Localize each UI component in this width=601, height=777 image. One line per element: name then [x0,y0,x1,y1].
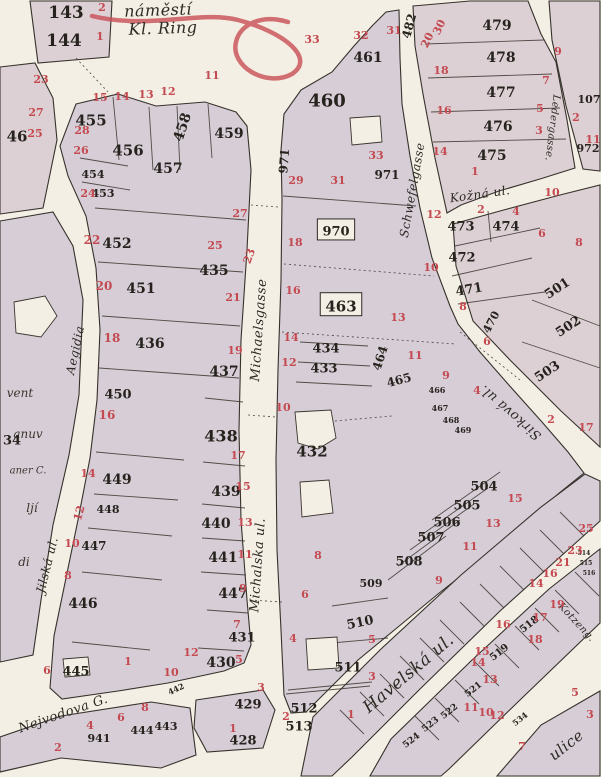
house-number-label: 26 [73,144,89,157]
house-number-label: 4 [512,205,520,218]
corner-hatch-3 [330,751,368,774]
parcel-431: 431 [228,631,255,646]
house-number-15: 15 [507,492,522,505]
house-number-10: 10 [423,261,439,274]
parcel-label: 472 [448,251,475,266]
house-number-3: 3 [586,708,594,721]
house-number-label: 16 [285,284,301,297]
house-number-label: 8 [575,236,583,249]
house-number-14: 14 [432,145,448,158]
house-number-label: 12 [426,208,441,221]
house-number-label: 18 [104,331,121,345]
parcel-436: 436 [135,336,164,352]
parcel-label: 443 [155,720,178,733]
house-number-label: 3 [368,670,376,683]
house-number-label: 13 [390,311,405,324]
house-number-18: 18 [527,633,543,646]
house-number-label: 13 [138,88,153,101]
parcel-label: 467 [432,403,449,413]
parcel-label: 437 [209,364,238,380]
house-number-label: 9 [435,574,443,587]
parcel-46: 46 [7,127,28,145]
parcel-label: 444 [131,724,154,737]
parcel-506: 506 [433,516,460,531]
parcel-463: 463 [320,293,362,316]
house-number-17: 17 [532,611,547,624]
house-number-21: 21 [225,291,240,304]
house-number-8: 8 [314,549,322,562]
corner-hatch-1 [70,745,141,776]
parcel-label: 445 [62,665,89,680]
house-number-3: 3 [257,681,265,694]
parcel-label: 516 [583,570,596,577]
parcel-445: 445 [62,665,89,680]
house-number-1: 1 [96,30,104,43]
house-number-label: 6 [117,711,125,724]
house-number-label: 16 [436,104,452,117]
house-number-10: 10 [163,666,179,679]
house-number-14: 14 [283,331,299,344]
parcel-label: 107 [578,93,601,106]
house-number-label: 17 [578,421,593,434]
parcel-504: 504 [470,480,497,495]
parcel-941: 941 [88,732,111,745]
house-number-10: 10 [275,401,291,414]
parcel-label: 46 [7,127,28,145]
parcel-459: 459 [214,126,243,142]
house-number-label: 11 [237,548,252,561]
house-number-label: 15 [92,91,107,104]
parcel-460: 460 [308,90,346,111]
house-number-label: 9 [239,582,247,595]
house-number-18: 18 [433,64,449,77]
house-number-label: 18 [527,633,543,646]
house-number-label: 13 [485,517,500,530]
house-number-27: 27 [28,106,43,119]
house-number-label: 2 [547,413,555,426]
house-number-label: 6 [301,588,309,601]
parcel-444: 444 [131,724,154,737]
house-number-label: 6 [483,335,491,348]
house-number-22: 22 [84,233,101,247]
parcel-457: 457 [153,161,182,177]
house-number-label: 17 [532,611,547,624]
house-number-1: 1 [124,655,132,668]
parcel-435: 435 [199,263,228,279]
house-number-label: 25 [27,127,42,140]
parcel-434: 434 [312,342,339,357]
house-number-label: 16 [542,567,558,580]
house-number-25: 25 [27,127,42,140]
house-number-14: 14 [470,656,486,669]
parcel-478: 478 [486,50,515,66]
house-number-label: 14 [283,331,299,344]
house-number-label: 4 [473,384,481,397]
house-number-label: 9 [554,45,562,58]
parcel-475: 475 [477,148,506,164]
house-number-19: 19 [227,344,242,357]
house-number-label: 9 [442,369,450,382]
house-number-11: 11 [462,540,477,553]
house-number-4: 4 [473,384,481,397]
parcel-433: 433 [310,362,337,377]
house-number-label: 25 [578,522,593,535]
parcel-label: 460 [308,90,346,111]
parcel-label: 428 [229,734,256,749]
parcel-429: 429 [234,698,261,713]
house-number-18: 18 [104,331,121,345]
house-number-5: 5 [536,102,544,115]
house-number-label: 21 [225,291,240,304]
parcel-label: 432 [296,442,327,460]
house-number-label: 1 [471,165,479,178]
map-canvas: náměstíKl. RingMichaelsgasseMichalska ul… [0,0,601,777]
house-number-label: 18 [287,236,303,249]
house-number-13: 13 [482,673,497,686]
house-number-10: 10 [478,706,494,719]
parcel-label: 457 [153,161,182,177]
parcel-label: 438 [204,427,237,446]
house-number-label: 13 [237,516,252,529]
parcel-label: 461 [353,50,382,66]
house-number-18: 18 [287,236,303,249]
house-number-31: 31 [386,24,401,37]
house-number-16: 16 [285,284,301,297]
house-number-label: 7 [518,740,526,753]
house-number-14: 14 [114,90,130,103]
house-number-label: 23 [33,73,48,86]
house-number-label: 17 [230,449,245,462]
parcel-label: 971 [374,168,399,182]
parcel-label: 434 [312,342,339,357]
parcel-515: 515 [580,560,593,567]
house-number-label: 1 [229,722,237,735]
fragment-di: di [18,555,30,569]
house-number-label: 29 [288,174,303,187]
house-number-12: 12 [160,85,175,98]
house-number-28: 28 [74,124,90,137]
house-number-label: 14 [432,145,448,158]
house-number-16: 16 [542,567,558,580]
parcel-441: 441 [208,550,237,566]
house-number-label: 13 [482,673,497,686]
house-number-6: 6 [483,335,491,348]
street-kl-ring: Kl. Ring [127,17,198,38]
parcel-516: 516 [583,570,596,577]
parcel-label: 508 [395,555,422,570]
parcel-label: 448 [97,503,120,516]
parcel-511: 511 [334,661,361,676]
house-number-32: 32 [353,29,368,42]
house-number-label: 10 [544,186,560,199]
parcel-label: 468 [443,415,460,425]
house-number-label: 14 [114,90,130,103]
house-number-label: 11 [585,133,600,146]
house-number-2: 2 [282,710,290,723]
house-number-label: 33 [304,33,319,46]
parcel-label: 466 [429,385,446,395]
parcel-label: 452 [102,236,131,252]
parcel-971: 971 [276,148,292,174]
parcel-label: 440 [201,516,230,532]
house-number-6: 6 [538,227,546,240]
house-number-10: 10 [544,186,560,199]
house-number-label: 8 [141,701,149,714]
parcel-469: 469 [455,425,472,435]
house-number-2: 2 [477,203,485,216]
parcel-428: 428 [229,734,256,749]
house-number-label: 25 [207,239,222,252]
parcel-label: 433 [310,362,337,377]
parcel-label: 463 [325,297,356,315]
parcel-447: 447 [81,539,106,553]
house-number-2: 2 [572,111,580,124]
parcel-label: 504 [470,480,497,495]
parcel-label: 475 [477,148,506,164]
house-number-5: 5 [368,633,376,646]
house-number-label: 28 [74,124,90,137]
house-number-13: 13 [237,516,252,529]
house-number-6: 6 [43,664,51,677]
parcel-508: 508 [395,555,422,570]
house-number-label: 19 [227,344,242,357]
street-label: Kl. Ring [127,17,198,38]
house-number-label: 31 [386,24,401,37]
parcel-label: 511 [334,661,361,676]
parcel-label: 454 [82,168,105,181]
historical-cadastral-map: náměstíKl. RingMichaelsgasseMichalska ul… [0,0,601,777]
house-number-20: 20 [96,279,113,293]
parcel-450: 450 [104,388,131,403]
house-number-label: 11 [463,701,478,714]
house-number-9: 9 [239,582,247,595]
house-number-label: 1 [124,655,132,668]
house-number-label: 22 [84,233,101,247]
house-number-3: 3 [368,670,376,683]
parcel-505: 505 [453,499,480,514]
house-number-1: 1 [471,165,479,178]
parcel-label: 515 [580,560,593,567]
house-number-5: 5 [235,653,243,666]
house-number-11: 11 [407,349,422,362]
house-number-label: 15 [235,480,250,493]
house-number-label: 3 [586,708,594,721]
parcel-label: 509 [360,577,383,590]
house-number-13: 13 [485,517,500,530]
fragment-label: di [18,555,30,569]
house-number-label: 5 [536,102,544,115]
house-number-8: 8 [64,569,72,582]
parcel-466: 466 [429,385,446,395]
house-number-label: 15 [507,492,522,505]
house-number-12: 12 [281,356,296,369]
house-number-11: 11 [585,133,600,146]
parcel-label: 476 [483,119,512,135]
house-number-11: 11 [204,69,219,82]
house-number-9: 9 [435,574,443,587]
house-number-label: 20 [96,279,113,293]
house-number-label: 12 [183,646,198,659]
parcel-label: 447 [81,539,106,553]
house-number-label: 11 [462,540,477,553]
parcel-label: 450 [104,388,131,403]
house-number-33: 33 [368,149,383,162]
parcel-971: 971 [374,168,399,182]
house-number-7: 7 [542,74,550,87]
house-number-label: 14 [80,467,96,480]
house-number-label: 32 [353,29,368,42]
house-number-label: 2 [282,710,290,723]
house-number-label: 31 [330,174,345,187]
house-number-9: 9 [442,369,450,382]
parcel-452: 452 [102,236,131,252]
parcel-437: 437 [209,364,238,380]
house-number-label: 8 [459,300,467,313]
parcel-474: 474 [492,220,519,235]
house-number-label: 5 [235,653,243,666]
house-number-17: 17 [230,449,245,462]
parcel-label: 473 [447,220,474,235]
house-number-label: 14 [528,577,544,590]
house-number-label: 8 [64,569,72,582]
house-number-7: 7 [233,618,241,631]
house-number-29: 29 [288,174,303,187]
parcel-507: 507 [417,531,444,546]
parcel-107: 107 [578,93,601,106]
fragment-vent: vent [7,386,34,400]
house-number-14: 14 [528,577,544,590]
parcel-509: 509 [360,577,383,590]
parcel-label: 451 [126,281,155,297]
parcel-label: 449 [102,472,131,488]
house-number-label: 10 [423,261,439,274]
parcel-479: 479 [482,18,511,34]
house-number-label: 10 [64,537,80,550]
house-number-33: 33 [304,33,319,46]
parcel-label: 507 [417,531,444,546]
parcel-label: 970 [322,225,349,240]
house-number-15: 15 [92,91,107,104]
parcel-label: 469 [455,425,472,435]
house-number-7: 7 [518,740,526,753]
house-number-26: 26 [73,144,89,157]
house-number-label: 10 [275,401,291,414]
house-number-label: 5 [368,633,376,646]
parcel-34: 34 [3,434,21,449]
fragment-label: vent [7,386,34,400]
house-number-12: 12 [426,208,441,221]
parcel-461: 461 [353,50,382,66]
house-number-label: 5 [571,686,579,699]
parcel-label: 459 [214,126,243,142]
parcel-label: 436 [135,336,164,352]
parcel-432: 432 [296,442,327,460]
parcel-label: 505 [453,499,480,514]
house-number-label: 16 [99,408,116,422]
parcel-143: 143 [48,3,84,23]
house-number-label: 27 [28,106,43,119]
parcel-label: 435 [199,263,228,279]
parcel-label: 456 [112,141,143,159]
house-number-13: 13 [390,311,405,324]
parcel-label: 441 [208,550,237,566]
house-number-16: 16 [495,618,511,631]
house-number-label: 12 [281,356,296,369]
house-number-label: 10 [163,666,179,679]
house-number-31: 31 [330,174,345,187]
house-number-6: 6 [117,711,125,724]
parcel-472: 472 [448,251,475,266]
house-number-label: 2 [98,1,106,14]
house-number-6: 6 [301,588,309,601]
parcel-144: 144 [46,31,82,51]
parcel-label: 431 [228,631,255,646]
parcel-473: 473 [447,220,474,235]
parcel-438: 438 [204,427,237,446]
house-number-4: 4 [86,719,94,732]
house-number-16: 16 [436,104,452,117]
parcel-label: 429 [234,698,261,713]
house-number-17: 17 [578,421,593,434]
house-number-label: 8 [314,549,322,562]
house-number-label: 18 [433,64,449,77]
house-number-label: 33 [368,149,383,162]
parcel-label: 430 [206,655,235,671]
parcel-label: 941 [88,732,111,745]
house-number-25: 25 [207,239,222,252]
parcel-label: 144 [46,31,82,51]
house-number-label: 4 [289,632,297,645]
parcel-label: 34 [3,434,21,449]
house-number-25: 25 [578,522,593,535]
house-number-label: 3 [257,681,265,694]
house-number-14: 14 [80,467,96,480]
fragment-aner-c-: aner C. [10,466,47,477]
house-number-label: 4 [86,719,94,732]
house-number-27: 27 [232,207,247,220]
house-number-8: 8 [459,300,467,313]
house-number-15: 15 [235,480,250,493]
house-number-label: 1 [96,30,104,43]
parcel-label: 506 [433,516,460,531]
parcel-477: 477 [486,85,515,101]
house-number-1: 1 [347,708,355,721]
house-number-label: 7 [542,74,550,87]
house-number-label: 7 [233,618,241,631]
parcel-430: 430 [206,655,235,671]
house-number-label: 24 [80,187,96,200]
house-number-9: 9 [554,45,562,58]
house-number-1: 1 [229,722,237,735]
parcel-label: 479 [482,18,511,34]
parcel-456: 456 [112,141,143,159]
house-number-13: 13 [138,88,153,101]
house-number-label: 11 [204,69,219,82]
house-number-4: 4 [289,632,297,645]
parcel-label: 971 [276,148,292,174]
parcel-440: 440 [201,516,230,532]
parcel-label: 512 [290,702,317,717]
parcel-970: 970 [317,219,354,240]
parcel-476: 476 [483,119,512,135]
house-number-label: 27 [232,207,247,220]
house-number-4: 4 [512,205,520,218]
parcel-449: 449 [102,472,131,488]
house-number-11: 11 [237,548,252,561]
house-number-8: 8 [575,236,583,249]
house-number-2: 2 [547,413,555,426]
parcel-468: 468 [443,415,460,425]
